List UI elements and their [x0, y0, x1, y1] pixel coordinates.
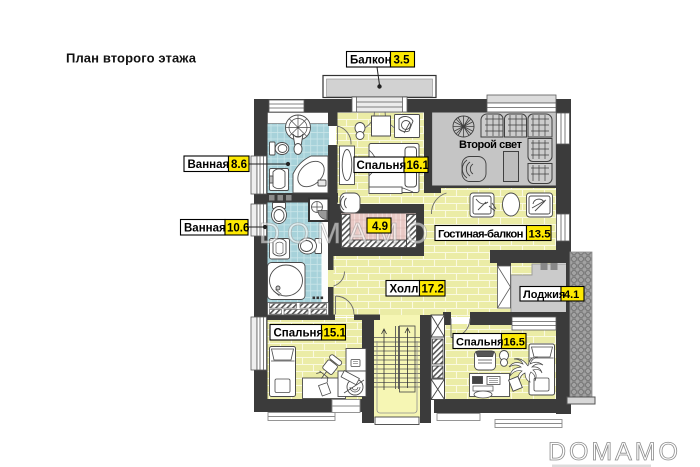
svg-text:Холл: Холл [390, 284, 419, 296]
svg-text:4.9: 4.9 [372, 221, 388, 233]
svg-text:16.1: 16.1 [407, 160, 430, 172]
svg-text:План второго этажа: План второго этажа [66, 51, 197, 66]
svg-text:Ванная: Ванная [188, 159, 230, 171]
svg-text:10.6: 10.6 [227, 223, 249, 235]
svg-text:3.5: 3.5 [394, 55, 411, 67]
svg-text:DOMAMO: DOMAMO [259, 218, 437, 250]
svg-text:DOMAMO: DOMAMO [548, 438, 685, 466]
svg-text:Спальня: Спальня [357, 160, 407, 172]
svg-text:Лоджия: Лоджия [523, 289, 565, 301]
svg-text:17.2: 17.2 [422, 284, 444, 296]
svg-text:8.6: 8.6 [231, 159, 247, 171]
svg-text:Второй свет: Второй свет [459, 139, 523, 151]
svg-text:16.5: 16.5 [504, 337, 525, 349]
svg-text:Ванная: Ванная [184, 223, 226, 235]
svg-text:Гостиная-балкон: Гостиная-балкон [438, 229, 524, 241]
svg-text:13.5: 13.5 [529, 229, 551, 241]
svg-text:Балкон: Балкон [350, 55, 392, 67]
svg-text:Спальня: Спальня [274, 328, 324, 340]
svg-text:15.1: 15.1 [324, 328, 347, 340]
svg-text:4.1: 4.1 [564, 289, 579, 301]
svg-text:Спальня: Спальня [456, 337, 504, 349]
